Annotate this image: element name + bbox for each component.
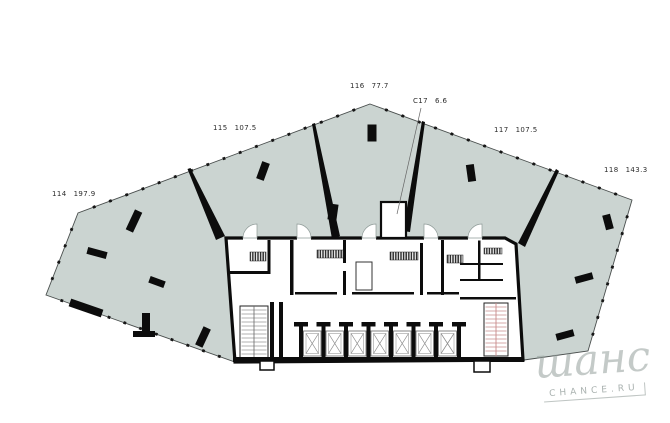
column (368, 125, 377, 142)
lift-divider-cap (294, 322, 308, 327)
unit-area: 107.5 (235, 124, 257, 132)
lift-divider-wall (344, 322, 348, 357)
lift-divider-cap (317, 322, 331, 327)
unit-label-114: 114197.9 (52, 190, 96, 198)
lift-divider-cap (339, 322, 353, 327)
room-c17 (381, 202, 406, 238)
unit-code: 118 (604, 166, 619, 174)
lift-divider-cap (362, 322, 376, 327)
unit-code: 115 (213, 124, 228, 132)
entry-tab-left (260, 361, 274, 370)
lift-divider-cap (452, 322, 466, 327)
unit-code: C17 (413, 97, 428, 105)
unit-label-117: 117107.5 (494, 126, 538, 134)
unit-area: 197.9 (74, 190, 96, 198)
unit-area: 143.3 (626, 166, 648, 174)
lift-divider-wall (389, 322, 393, 357)
unit-label-115: 115107.5 (213, 124, 257, 132)
lift-divider-cap (384, 322, 398, 327)
lift-divider-cap (429, 322, 443, 327)
unit-label-c17: C176.6 (413, 97, 447, 105)
unit-code: 116 (350, 82, 365, 90)
lift-divider-wall (367, 322, 371, 357)
unit-area: 6.6 (435, 97, 447, 105)
unit-code: 117 (494, 126, 509, 134)
unit-code: 114 (52, 190, 67, 198)
lift-divider-wall (412, 322, 416, 357)
floorplan-canvas: 114197.9 115107.5 11677.7 C176.6 117107.… (0, 0, 670, 423)
entry-tab-right (474, 361, 490, 372)
column (133, 331, 155, 337)
unit-area: 107.5 (516, 126, 538, 134)
lift-divider-wall (434, 322, 438, 357)
lift-divider-cap (407, 322, 421, 327)
unit-label-118: 118143.3 (604, 166, 648, 174)
unit-label-116: 11677.7 (350, 82, 389, 90)
floor-plan-svg (0, 0, 670, 423)
lift-divider-wall (299, 322, 303, 357)
lift-divider-wall (457, 322, 461, 357)
lift-divider-wall (322, 322, 326, 357)
unit-area: 77.7 (372, 82, 389, 90)
